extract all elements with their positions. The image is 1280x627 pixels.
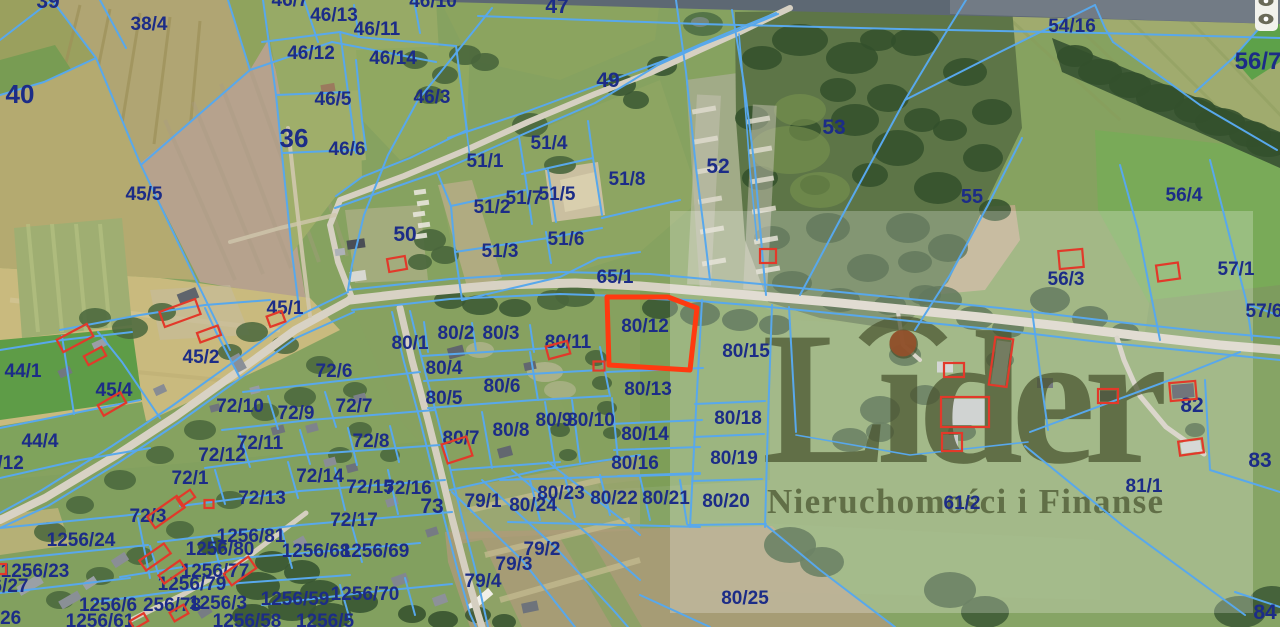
svg-text:1256/70: 1256/70	[331, 584, 400, 605]
svg-text:83: 83	[1248, 449, 1271, 472]
svg-text:82: 82	[1180, 394, 1203, 417]
svg-text:54/16: 54/16	[1048, 16, 1096, 37]
svg-text:46/13: 46/13	[310, 5, 358, 26]
svg-text:80/21: 80/21	[642, 488, 690, 509]
svg-text:46/12: 46/12	[287, 43, 335, 64]
svg-text:46/7: 46/7	[272, 0, 309, 11]
svg-text:1256/24: 1256/24	[47, 530, 116, 551]
svg-text:80/24: 80/24	[509, 495, 557, 516]
svg-text:80/20: 80/20	[702, 491, 750, 512]
svg-text:1256/69: 1256/69	[341, 541, 410, 562]
svg-text:72/6: 72/6	[316, 361, 353, 382]
svg-text:81/1: 81/1	[1126, 476, 1163, 497]
svg-text:46/10: 46/10	[409, 0, 457, 12]
svg-text:56/7: 56/7	[1235, 48, 1280, 75]
svg-text:36: 36	[280, 123, 309, 153]
svg-text:80/2: 80/2	[438, 323, 475, 344]
svg-text:47: 47	[545, 0, 568, 18]
svg-text:53: 53	[822, 116, 845, 139]
svg-text:65/1: 65/1	[597, 267, 634, 288]
svg-text:80/15: 80/15	[722, 341, 770, 362]
svg-text:45/1: 45/1	[267, 298, 304, 319]
svg-text:/26: /26	[0, 608, 21, 627]
svg-text:40: 40	[6, 79, 35, 109]
svg-text:72/8: 72/8	[353, 431, 390, 452]
svg-text:80/5: 80/5	[426, 388, 463, 409]
svg-text:51/6: 51/6	[548, 229, 585, 250]
svg-text:80/25: 80/25	[721, 588, 769, 609]
svg-text:80/6: 80/6	[484, 376, 521, 397]
svg-text:80/4: 80/4	[426, 358, 463, 379]
svg-text:38/4: 38/4	[131, 14, 168, 35]
svg-text:49: 49	[596, 69, 619, 92]
svg-text:46/3: 46/3	[414, 87, 451, 108]
svg-text:73: 73	[420, 495, 443, 518]
svg-text:52: 52	[706, 155, 729, 178]
svg-text:61/2: 61/2	[944, 493, 981, 514]
svg-text:1256/5: 1256/5	[296, 611, 355, 627]
svg-text:80/12: 80/12	[621, 316, 669, 337]
svg-text:51/5: 51/5	[539, 184, 576, 205]
svg-text:55: 55	[961, 186, 983, 208]
svg-text:51/7: 51/7	[506, 188, 543, 209]
svg-text:51/1: 51/1	[467, 151, 504, 172]
svg-text:50: 50	[393, 223, 416, 246]
svg-text:51/8: 51/8	[609, 169, 646, 190]
svg-text:46/11: 46/11	[354, 19, 401, 40]
svg-text:57/1: 57/1	[1218, 259, 1255, 280]
svg-text:51/4: 51/4	[531, 133, 568, 154]
svg-text:39: 39	[36, 0, 59, 13]
svg-text:51/3: 51/3	[482, 241, 519, 262]
svg-text:80/19: 80/19	[710, 448, 758, 469]
svg-text:72/12: 72/12	[198, 445, 246, 466]
svg-text:84: 84	[1253, 601, 1277, 624]
svg-text:72/12: 72/12	[0, 453, 24, 474]
svg-text:45/4: 45/4	[96, 380, 133, 401]
svg-text:44/4: 44/4	[22, 431, 59, 452]
svg-text:80/1: 80/1	[392, 333, 429, 354]
svg-text:80/3: 80/3	[483, 323, 520, 344]
svg-text:46/5: 46/5	[315, 89, 352, 110]
svg-text:1256/59: 1256/59	[261, 589, 330, 610]
svg-text:80/18: 80/18	[714, 408, 762, 429]
svg-text:80/14: 80/14	[621, 424, 669, 445]
svg-text:44/1: 44/1	[5, 361, 42, 382]
svg-text:1256/79: 1256/79	[158, 574, 227, 595]
svg-text:80/8: 80/8	[493, 420, 530, 441]
svg-text:45/2: 45/2	[183, 347, 220, 368]
svg-text:72/9: 72/9	[278, 403, 315, 424]
svg-text:1256/61: 1256/61	[66, 611, 135, 627]
svg-text:80/10: 80/10	[567, 410, 615, 431]
svg-text:72/1: 72/1	[172, 468, 209, 489]
svg-text:80/22: 80/22	[590, 488, 638, 509]
svg-text:72/17: 72/17	[330, 510, 378, 531]
svg-text:80/16: 80/16	[611, 453, 659, 474]
svg-text:72/14: 72/14	[296, 466, 344, 487]
svg-text:45/5: 45/5	[126, 184, 163, 205]
svg-text:46/14: 46/14	[369, 48, 417, 69]
svg-text:72/13: 72/13	[238, 488, 286, 509]
svg-text:72/10: 72/10	[216, 396, 264, 417]
svg-text:46/6: 46/6	[329, 139, 366, 160]
svg-text:57/6: 57/6	[1246, 301, 1280, 322]
svg-text:56/4: 56/4	[1166, 185, 1203, 206]
svg-text:79/1: 79/1	[465, 491, 502, 512]
svg-text:56/3: 56/3	[1048, 269, 1085, 290]
svg-text:6/27: 6/27	[0, 576, 28, 597]
svg-text:80/13: 80/13	[624, 379, 672, 400]
svg-text:72/7: 72/7	[336, 396, 373, 417]
svg-text:1256/58: 1256/58	[213, 611, 282, 627]
svg-text:79/4: 79/4	[465, 571, 502, 592]
svg-text:1256/80: 1256/80	[186, 539, 255, 560]
